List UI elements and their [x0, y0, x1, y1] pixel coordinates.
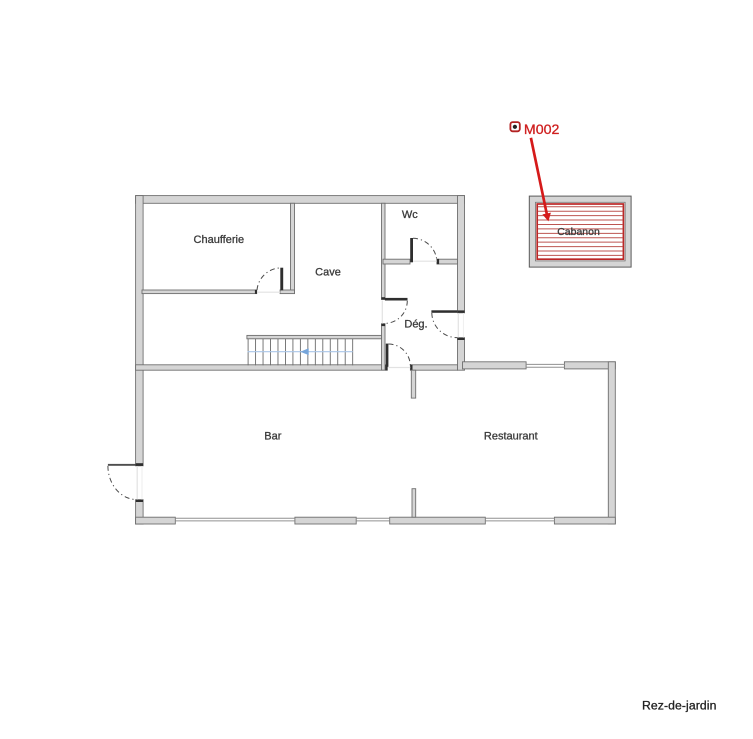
svg-text:Bar: Bar — [264, 431, 281, 443]
svg-text:Dég.: Dég. — [404, 319, 427, 331]
svg-text:M002: M002 — [524, 122, 560, 138]
svg-text:Restaurant: Restaurant — [484, 431, 538, 443]
svg-text:Wc: Wc — [402, 209, 418, 221]
svg-text:Cabanon: Cabanon — [557, 226, 600, 238]
svg-text:Cave: Cave — [315, 267, 341, 279]
svg-text:Chaufferie: Chaufferie — [194, 234, 245, 246]
svg-text:Rez-de-jardin: Rez-de-jardin — [642, 699, 716, 713]
